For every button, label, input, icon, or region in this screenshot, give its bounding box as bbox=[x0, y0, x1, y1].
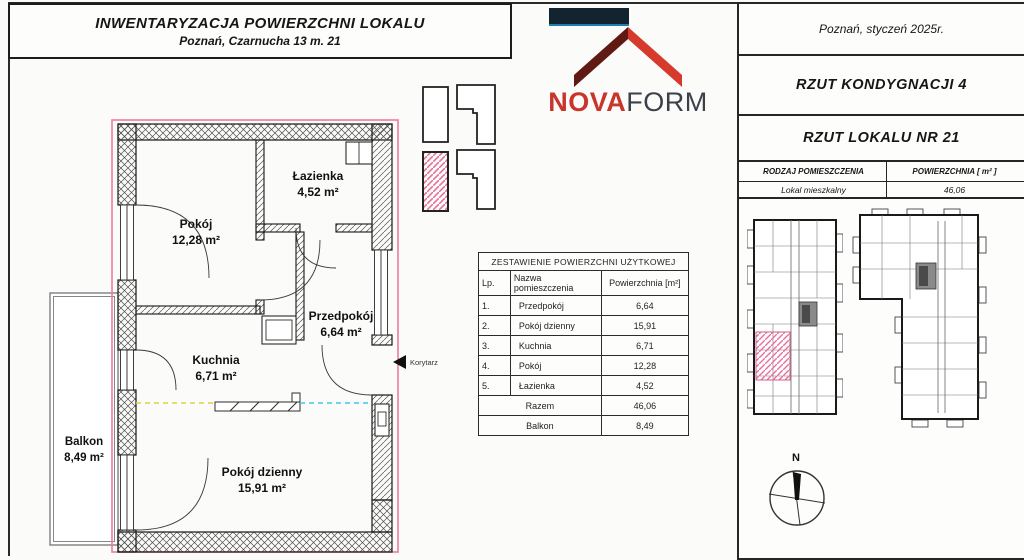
balcony-value: 8,49 bbox=[601, 416, 688, 436]
cell-lp: 3. bbox=[479, 336, 511, 356]
cell-lp: 4. bbox=[479, 356, 511, 376]
title-block: INWENTARYZACJA POWIERZCHNI LOKALU Poznań… bbox=[8, 3, 512, 59]
cell-area: 6,64 bbox=[601, 296, 688, 316]
room-name: Kuchnia bbox=[161, 352, 271, 368]
room-area: 12,28 m² bbox=[141, 232, 251, 248]
corridor-arrow-icon bbox=[393, 355, 406, 369]
balcony-outline bbox=[50, 293, 118, 545]
logo-redacted-bar bbox=[549, 8, 629, 26]
table-title: ZESTAWIENIE POWIERZCHNI UŻYTKOWEJ bbox=[479, 253, 689, 271]
col-header-lp: Lp. bbox=[479, 271, 511, 296]
cell-area: 4,52 bbox=[601, 376, 688, 396]
logo-text-form: FORM bbox=[626, 87, 707, 117]
room-area: 6,64 m² bbox=[286, 324, 396, 340]
room-area: 8,49 m² bbox=[29, 450, 139, 466]
logo-wordmark: NOVAFORM bbox=[543, 87, 713, 118]
title-panel: Poznań, styczeń 2025r. RZUT KONDYGNACJI … bbox=[737, 2, 1024, 560]
unit-type: Lokal mieszkalny bbox=[741, 182, 887, 197]
cell-name: Łazienka bbox=[510, 376, 601, 396]
table-row: 5. Łazienka 4,52 bbox=[479, 376, 689, 396]
type-col-header: RODZAJ POMIESZCZENIA bbox=[741, 162, 887, 181]
floor-plan: Pokój 12,28 m² Łazienka 4,52 m² Przedpok… bbox=[30, 112, 435, 558]
total-label: Razem bbox=[479, 396, 602, 416]
legend-building-b-outline bbox=[455, 83, 499, 147]
cell-name: Pokój dzienny bbox=[510, 316, 601, 336]
type-table-row: Lokal mieszkalny 46,06 bbox=[739, 182, 1024, 199]
room-area: 15,91 m² bbox=[207, 480, 317, 496]
balcony-label: Balkon bbox=[479, 416, 602, 436]
key-plan-building-a bbox=[747, 214, 843, 424]
table-row: 1. Przedpokój 6,64 bbox=[479, 296, 689, 316]
room-label-przedpokoj: Przedpokój 6,64 m² bbox=[286, 308, 396, 340]
cell-name: Przedpokój bbox=[510, 296, 601, 316]
corridor-label: Korytarz bbox=[410, 358, 438, 367]
page-left-border bbox=[8, 2, 10, 556]
room-area: 6,71 m² bbox=[161, 368, 271, 384]
table-row: 4. Pokój 12,28 bbox=[479, 356, 689, 376]
logo-text-nova: NOVA bbox=[548, 87, 626, 117]
document-subtitle: Poznań, Czarnucha 13 m. 21 bbox=[179, 34, 340, 48]
floor-title-row: RZUT KONDYGNACJI 4 bbox=[739, 56, 1024, 116]
compass: N bbox=[759, 448, 835, 538]
room-name: Przedpokój bbox=[286, 308, 396, 324]
cell-lp: 5. bbox=[479, 376, 511, 396]
room-name: Łazienka bbox=[263, 168, 373, 184]
room-label-lazienka: Łazienka 4,52 m² bbox=[263, 168, 373, 200]
cell-lp: 2. bbox=[479, 316, 511, 336]
room-name: Pokój dzienny bbox=[207, 464, 317, 480]
unit-title-row: RZUT LOKALU NR 21 bbox=[739, 116, 1024, 162]
area-col-header: POWIERZCHNIA [ m² ] bbox=[887, 162, 1022, 181]
area-summary-table: ZESTAWIENIE POWIERZCHNI UŻYTKOWEJ Lp. Na… bbox=[478, 252, 689, 436]
legend-building-b-outline-2 bbox=[455, 148, 499, 212]
col-header-name: Nazwa pomieszczenia bbox=[510, 271, 601, 296]
unit-21-highlight bbox=[756, 332, 790, 380]
type-table-header: RODZAJ POMIESZCZENIA POWIERZCHNIA [ m² ] bbox=[739, 162, 1024, 182]
cell-name: Kuchnia bbox=[510, 336, 601, 356]
room-area: 4,52 m² bbox=[263, 184, 373, 200]
kitchen-counter bbox=[215, 393, 300, 411]
balcony-row: Balkon 8,49 bbox=[479, 416, 689, 436]
cell-area: 12,28 bbox=[601, 356, 688, 376]
cell-area: 15,91 bbox=[601, 316, 688, 336]
novaform-chevron-icon bbox=[569, 25, 687, 87]
compass-needle-icon bbox=[793, 472, 801, 500]
date-row: Poznań, styczeń 2025r. bbox=[739, 4, 1024, 56]
room-label-pokoj-dzienny: Pokój dzienny 15,91 m² bbox=[207, 464, 317, 496]
cell-name: Pokój bbox=[510, 356, 601, 376]
room-name: Balkon bbox=[29, 434, 139, 450]
cell-lp: 1. bbox=[479, 296, 511, 316]
total-row: Razem 46,06 bbox=[479, 396, 689, 416]
table-row: 2. Pokój dzienny 15,91 bbox=[479, 316, 689, 336]
room-name: Pokój bbox=[141, 216, 251, 232]
cell-area: 6,71 bbox=[601, 336, 688, 356]
unit-area: 46,06 bbox=[887, 182, 1022, 197]
room-label-balkon: Balkon 8,49 m² bbox=[29, 434, 139, 466]
room-label-kuchnia: Kuchnia 6,71 m² bbox=[161, 352, 271, 384]
novaform-logo: NOVAFORM bbox=[543, 5, 713, 120]
key-plan-building-b bbox=[852, 207, 992, 429]
total-value: 46,06 bbox=[601, 396, 688, 416]
document-title: INWENTARYZACJA POWIERZCHNI LOKALU bbox=[95, 15, 425, 32]
room-label-pokoj: Pokój 12,28 m² bbox=[141, 216, 251, 248]
compass-north-label: N bbox=[792, 452, 800, 464]
col-header-area: Powierzchnia [m²] bbox=[601, 271, 688, 296]
table-row: 3. Kuchnia 6,71 bbox=[479, 336, 689, 356]
corridor-marker: Korytarz bbox=[393, 355, 438, 369]
